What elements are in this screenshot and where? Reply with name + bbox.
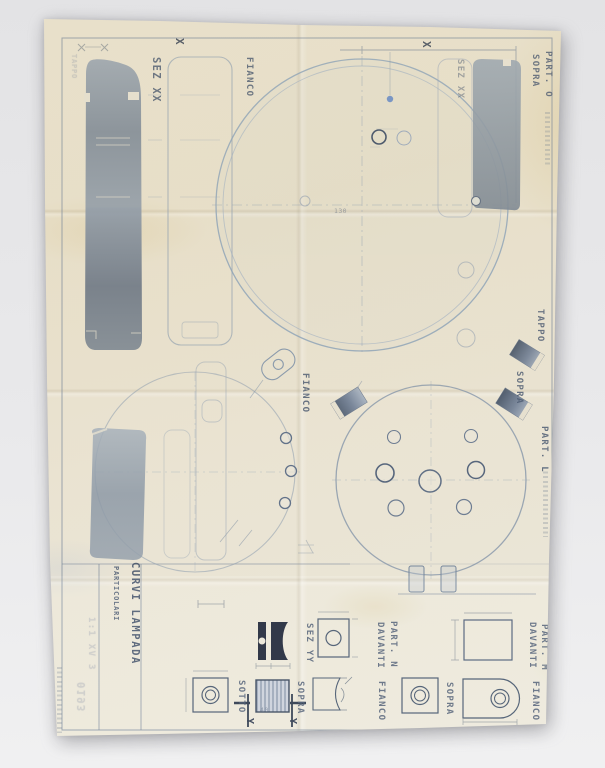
dim-block-width: 40 — [260, 707, 269, 714]
section-cut-marks — [78, 44, 108, 51]
section-profile-shaded — [84, 59, 142, 350]
label-sez-xx-left: SEZ XX — [151, 57, 162, 103]
label-part-m: PART. M — [539, 624, 548, 671]
section-mark-y-left: Y — [244, 718, 254, 724]
label-davanti-n: DAVANTI — [375, 622, 384, 669]
label-part-o: PART. O — [543, 51, 552, 98]
blueprint-sheet: SEZ XX SEZ XX FIANCO SOPRA PART. O TAPPO… — [0, 0, 605, 768]
label-sotto: SOTTO — [236, 680, 245, 714]
scale-note-ghost: 1:1 XV 3 — [86, 617, 95, 671]
section-mark-x-right: X — [421, 41, 432, 48]
label-sopra-b2: SOPRA — [444, 682, 453, 716]
bleedthrough-tappo: TAPPO — [70, 54, 77, 79]
label-sez-xx-right: SEZ XX — [455, 59, 464, 99]
middle-right-circle-view — [332, 381, 536, 594]
label-sopra-top: SOPRA — [530, 54, 539, 88]
large-circle-side-view — [212, 46, 516, 354]
label-fianco-n: FIANCO — [376, 681, 385, 721]
micro-text-strip-2 — [543, 467, 548, 537]
micro-text-strip-edge — [57, 667, 62, 733]
dim-circle-diameter: 130 — [334, 208, 347, 215]
label-sez-yy: SEZ YY — [304, 623, 313, 663]
label-davanti-m: DAVANTI — [527, 622, 536, 669]
micro-text-strip-1 — [545, 112, 550, 167]
label-tappo: TAPPO — [535, 309, 544, 343]
label-fianco-mid: FIANCO — [300, 373, 309, 413]
middle-shaded-profile — [90, 428, 146, 560]
label-part-l: PART. L — [539, 426, 548, 473]
label-sopra-b1: SOPRA — [295, 681, 304, 715]
cap-stub-top — [510, 339, 545, 370]
drawing-title: CURVI LAMPADA — [130, 562, 141, 665]
label-sopra-mid: SOPRA — [514, 371, 523, 405]
section-mark-x-left: X — [174, 38, 185, 45]
label-part-n: PART. N — [388, 621, 397, 668]
photo-of-drawing: SEZ XX SEZ XX FIANCO SOPRA PART. O TAPPO… — [0, 0, 605, 768]
label-fianco-m: FIANCO — [530, 681, 539, 721]
stamp-ghost: 0193 — [77, 682, 88, 713]
paper-shadow-wrap: SEZ XX SEZ XX FIANCO SOPRA PART. O TAPPO… — [0, 0, 605, 768]
label-fianco-top: FIANCO — [244, 57, 253, 97]
drawing-subtitle: PARTICOLARI — [112, 566, 119, 621]
section-mark-y-right: Y — [287, 718, 297, 724]
